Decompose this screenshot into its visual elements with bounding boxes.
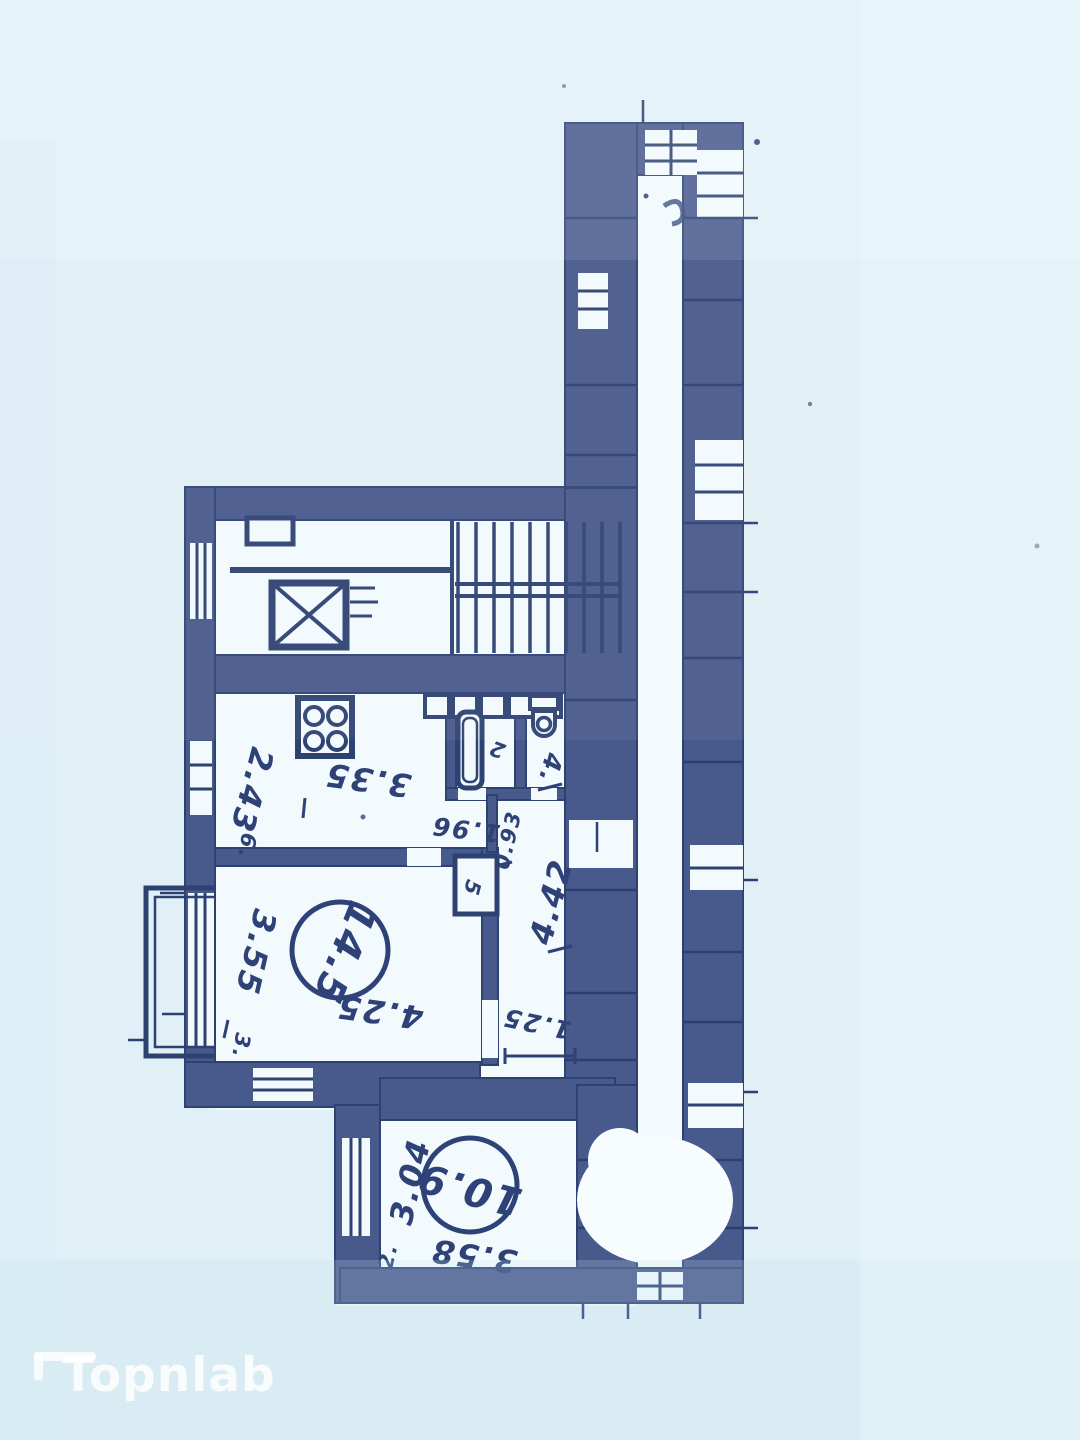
living-bottom-window <box>253 1068 313 1101</box>
corridor-right-opening-3 <box>690 845 743 890</box>
balcony-door-window-band <box>188 893 214 1048</box>
floor-plan-drawing: 2.43 6. 3.35 2 4. 1.96 0.93 5 4.42 1.25 … <box>0 0 1080 1440</box>
watermark: Topnlab <box>28 1336 328 1426</box>
kitchen-door <box>407 848 441 866</box>
num-living: 3. <box>227 1031 255 1061</box>
second-room-window <box>342 1138 370 1236</box>
scanned-floor-plan-page: 2.43 6. 3.35 2 4. 1.96 0.93 5 4.42 1.25 … <box>0 0 1080 1440</box>
watermark-brand-text: Topnlab <box>62 1348 276 1403</box>
kitchen-window <box>190 741 212 815</box>
living-hall-door <box>482 1000 498 1058</box>
num-kitchen: 6. <box>233 831 261 861</box>
entry-door-opening <box>569 820 633 868</box>
corridor-right-opening-4 <box>688 1083 743 1128</box>
